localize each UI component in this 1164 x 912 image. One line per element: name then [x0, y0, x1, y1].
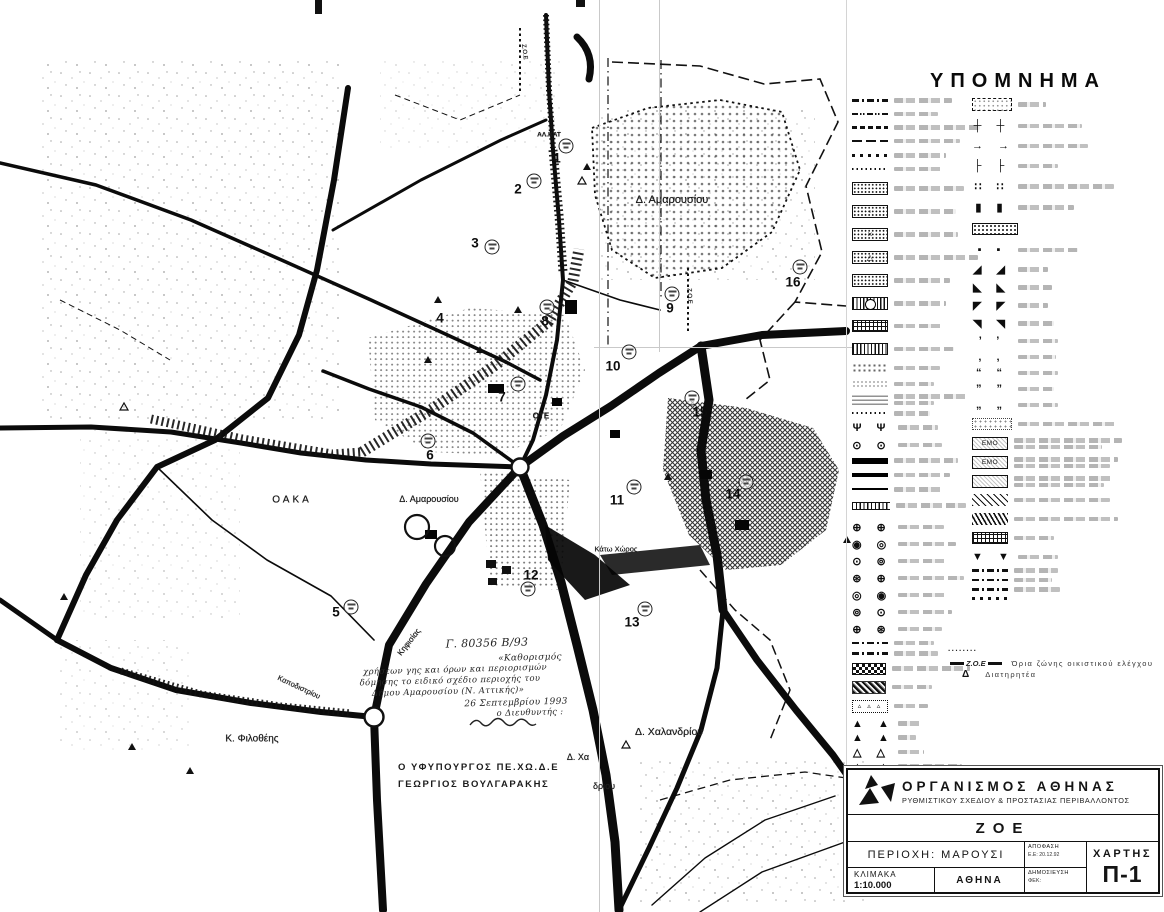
legend-row: ◉ ◎	[852, 538, 972, 551]
legend-row: ▲ ▲	[852, 718, 972, 730]
legend-row: ” ”	[972, 383, 1164, 395]
legend-row	[852, 473, 972, 478]
legend-symbol-dotbox-icon: ×	[852, 228, 888, 241]
legend-symbol-dotbox-icon: △	[852, 251, 888, 264]
legend-row	[852, 681, 972, 694]
legend-row: ▮ ▮	[972, 201, 1164, 214]
legend-row: ▵ ▵ ▵	[852, 700, 972, 713]
legend-label-illegible	[1014, 498, 1110, 503]
legend-symbol-pairglyph-icon: ◉ ◎	[852, 538, 892, 551]
legend-label-illegible	[894, 651, 938, 656]
legend-label-illegible	[894, 324, 944, 329]
legend-symbol-pairglyph-icon: △ △	[852, 746, 892, 759]
organization-logo	[856, 774, 896, 810]
legend-row: ◢ ◢	[972, 263, 1164, 276]
legend-symbol-dashbold-icon	[852, 126, 888, 130]
legend-label-illegible	[1014, 536, 1054, 541]
legend-row	[852, 153, 972, 158]
legend-label-illegible	[894, 112, 938, 117]
legend-row	[852, 139, 972, 144]
legend-label-illegible	[1014, 568, 1058, 573]
publication-value: ΦΕΚ:	[1028, 878, 1083, 884]
legend-symbol-tinytext-icon	[852, 395, 888, 405]
legend-label-illegible	[1018, 267, 1048, 272]
legend-label-illegible	[894, 153, 946, 158]
legend-symbol-pairglyph-icon: ⊛ ⊕	[852, 572, 892, 585]
legend-label-illegible	[894, 704, 928, 709]
legend-row: ⊕ ⊕	[852, 521, 972, 534]
legend-row: ◤ ◤	[972, 299, 1164, 312]
legend-row	[852, 98, 972, 103]
diatiritea-symbol: Δ	[962, 669, 969, 680]
legend-label-illegible	[898, 542, 956, 547]
legend-symbol-gridbox-icon	[972, 532, 1008, 544]
legend-row: ×	[852, 228, 972, 241]
legend-row: ▪ ▪	[972, 244, 1164, 256]
legend-symbol-pairglyph-icon: ◥ ◥	[972, 317, 1012, 330]
legend-symbol-dotbox-icon	[852, 182, 888, 195]
legend-row: ◦	[852, 205, 972, 218]
legend-row	[972, 494, 1164, 506]
legend-label-illegible	[894, 98, 952, 103]
legend-label-illegible	[898, 627, 942, 632]
chart-code: Π-1	[1102, 861, 1142, 888]
legend-symbol-dashdot-icon	[972, 588, 1008, 591]
legend-label-illegible	[894, 487, 944, 492]
organization-subtitle: ΡΥΘΜΙΣΤΙΚΟΥ ΣΧΕΔΙΟΥ & ΠΡΟΣΤΑΣΙΑΣ ΠΕΡΙΒΑΛ…	[902, 796, 1130, 805]
legend-row	[852, 182, 972, 195]
signature-squiggle	[468, 716, 538, 730]
legend-symbol-pairglyph-icon: ◤ ◤	[972, 299, 1012, 312]
legend-row	[852, 380, 972, 388]
organization-name: ΟΡΓΑΝΙΣΜΟΣ ΑΘΗΝΑΣ	[902, 779, 1130, 794]
legend-label-illegible	[894, 473, 950, 478]
legend-symbol-check-icon	[852, 663, 886, 675]
legend-label-illegible	[1018, 387, 1054, 392]
legend-row: ⊚ ⊙	[852, 606, 972, 619]
legend-label-illegible	[1018, 555, 1058, 560]
legend-row: ΕΜΟ	[972, 437, 1164, 450]
legend-column-right: ┼ ┼→ →├ ├∷ ∷▮ ▮▪ ▪◢ ◢◣ ◣◤ ◤◥ ◥’ ’‚ ‚“ “”…	[972, 98, 1164, 604]
legend-symbol-emo-icon: ΕΜΟ	[972, 456, 1008, 469]
legend-symbol-vhatch-icon	[852, 343, 888, 355]
legend-symbol-pairglyph-icon: ⊙ ⊚	[852, 555, 892, 568]
publication-label: ΔΗΜΟΣΙΕΥΣΗ	[1028, 870, 1083, 876]
legend-symbol-med-icon	[852, 473, 888, 477]
legend-label-illegible	[894, 394, 966, 405]
chart-label: ΧΑΡΤΗΣ	[1093, 848, 1152, 860]
legend-row: △ △	[852, 746, 972, 759]
legend-row: “ “	[972, 367, 1164, 379]
legend-label-illegible	[1018, 321, 1054, 326]
legend-symbol-dashdotdot-icon	[852, 113, 888, 116]
legend-label-illegible	[898, 610, 952, 615]
legend-row	[972, 418, 1164, 430]
legend-label-illegible	[1018, 248, 1078, 253]
legend-row	[852, 502, 972, 510]
legend-symbol-pairglyph-icon: ▲ ▲	[852, 718, 892, 730]
legend-symbol-dashdot-icon	[972, 579, 1008, 582]
legend-row: ⊙ ⊙	[852, 439, 972, 452]
title-block: ΟΡΓΑΝΙΣΜΟΣ ΑΘΗΝΑΣ ΡΥΘΜΙΣΤΙΚΟΥ ΣΧΕΔΙΟΥ & …	[846, 768, 1160, 894]
legend-row: „ „	[972, 399, 1164, 411]
legend-row	[852, 320, 972, 332]
region-cell: ΠΕΡΙΟΧΗ: ΜΑΡΟΥΣΙ	[848, 841, 1024, 867]
legend-symbol-noise-icon	[852, 681, 886, 694]
legend-label-illegible	[894, 411, 930, 416]
legend-row	[852, 411, 972, 416]
legend-symbol-pairglyph-icon: ◎ ◉	[852, 589, 892, 602]
legend-symbol-pairglyph-icon: ∷ ∷	[972, 180, 1012, 193]
legend-label-illegible	[1018, 184, 1114, 189]
legend-symbol-thin-icon	[852, 488, 888, 490]
legend-row	[972, 223, 1164, 235]
legend-label-illegible	[1018, 303, 1048, 308]
legend-zoe-entry: ········ Ζ.Ο.Ε Όρια ζώνης οικιστικού ελέ…	[948, 646, 1153, 668]
legend-label-illegible	[898, 559, 948, 564]
legend-row	[972, 98, 1164, 111]
legend-label-illegible	[894, 232, 958, 237]
legend-symbol-ties-icon	[852, 502, 890, 510]
legend-row	[852, 112, 972, 117]
legend-row	[972, 568, 1164, 573]
legend-label-illegible	[894, 125, 980, 130]
legend-symbol-pairglyph-icon: ├ ├	[972, 160, 1012, 172]
legend-symbol-emo-icon	[972, 475, 1008, 488]
legend-label-illegible	[1014, 587, 1060, 592]
legend-symbol-pairglyph-icon: ▼ ▼	[972, 551, 1012, 563]
legend-diatiritea-entry: Δ Διατηρητέα	[962, 669, 1036, 680]
legend-label-illegible	[894, 186, 964, 191]
legend-label-illegible	[898, 425, 938, 430]
legend-symbol-dotbox-icon	[852, 274, 888, 287]
legend-label-illegible	[1018, 144, 1088, 149]
legend-symbol-pairglyph-icon: ⊙ ⊙	[852, 439, 892, 452]
legend-row	[852, 394, 972, 405]
legend-symbol-sqdots-icon	[972, 597, 1008, 600]
legend-symbol-pairglyph-icon: ▮ ▮	[972, 201, 1012, 214]
scanned-planning-map-page: Δ. ΑμαρουσίουΔ. ΑμαρουσίουΟΑΚΑΟΤΕΚ. Φιλο…	[0, 0, 1164, 912]
legend-row: ∷ ∷	[972, 180, 1164, 193]
legend-row: ⊛ ⊕	[852, 572, 972, 585]
legend-row	[852, 297, 972, 310]
legend-row: △	[852, 251, 972, 264]
legend-symbol-pairglyph-icon: „ „	[972, 399, 1012, 411]
zoe-boundary-label: Όρια ζώνης οικιστικού ελέγχου	[1012, 659, 1154, 668]
legend-row	[852, 641, 972, 646]
legend-label-illegible	[898, 576, 964, 581]
legend-symbol-thick-icon	[852, 458, 888, 464]
publication-cell: ΔΗΜΟΣΙΕΥΣΗ ΦΕΚ:	[1024, 867, 1086, 892]
legend-dotted-row: ········	[948, 646, 1153, 655]
legend-label-illegible	[892, 685, 932, 690]
legend-row: ▼ ▼	[972, 551, 1164, 563]
legend-symbol-pairglyph-icon: ◣ ◣	[972, 281, 1012, 294]
legend-label-illegible	[898, 735, 916, 740]
scale-value: 1:10.000	[854, 880, 928, 891]
legend-symbol-pairglyph-icon: ” ”	[972, 383, 1012, 395]
legend-symbol-pairglyph-icon: → →	[972, 140, 1012, 152]
legend-row	[972, 578, 1164, 583]
diatiritea-label: Διατηρητέα	[985, 670, 1036, 679]
legend-label-illegible	[894, 278, 950, 283]
legend-symbol-pairglyph-icon: ▲ ▲	[852, 732, 892, 744]
legend-label-illegible	[1014, 517, 1118, 522]
decision-value: Ε.Ε: 20.12.92	[1028, 852, 1083, 858]
legend-label-illegible	[1018, 164, 1058, 169]
legend-row: ◥ ◥	[972, 317, 1164, 330]
legend-row: ▲ ▲	[852, 732, 972, 744]
legend-symbol-diag2-icon	[972, 513, 1008, 525]
legend-label-illegible	[1018, 355, 1056, 360]
legend-row	[972, 532, 1164, 544]
legend-row: ‚ ‚	[972, 351, 1164, 363]
legend-symbol-dashdot-icon	[852, 642, 888, 645]
legend-label-illegible	[894, 347, 954, 352]
legend-row: ’ ’	[972, 335, 1164, 347]
legend-label-illegible	[1018, 285, 1052, 290]
legend-row: ◎ ◉	[852, 589, 972, 602]
chart-cell: ΧΑΡΤΗΣ Π-1	[1086, 841, 1158, 892]
legend-symbol-faint-icon	[852, 380, 888, 388]
legend-label-illegible	[898, 525, 944, 530]
zoe-title: ΖΟΕ	[848, 814, 1158, 841]
zoe-boundary-symbol: Ζ.Ο.Ε	[948, 659, 1004, 668]
minister-name: ΓΕΩΡΓΙΟΣ ΒΟΥΛΓΑΡΑΚΗΣ	[398, 776, 559, 793]
legend-label-illegible	[1018, 339, 1058, 344]
legend-label-illegible	[1018, 102, 1046, 107]
legend-label-illegible	[1018, 205, 1074, 210]
legend-label-illegible	[898, 593, 946, 598]
handwritten-line: Γ. 80356 Β/93	[445, 635, 528, 650]
legend-title: ΥΠΟΜΝΗΜΑ	[930, 70, 1106, 93]
decision-label: ΑΠΟΦΑΣΗ	[1028, 844, 1083, 850]
legend-row	[852, 458, 972, 464]
legend-label-illegible	[894, 301, 946, 306]
scale-label: ΚΛΙΜΑΚΑ	[854, 870, 928, 879]
legend-label-illegible	[894, 167, 942, 172]
legend-label-illegible	[1014, 438, 1122, 449]
legend-symbol-pairglyph-icon: ◢ ◢	[972, 263, 1012, 276]
legend-symbol-dashdot-icon	[852, 652, 888, 655]
legend-row	[852, 274, 972, 287]
legend-row: → →	[972, 140, 1164, 152]
legend-label-illegible	[1014, 578, 1052, 583]
legend-symbol-pairglyph-icon: ┼ ┼	[972, 120, 1012, 132]
legend-symbol-circbox-icon	[852, 297, 888, 310]
legend-row	[972, 587, 1164, 592]
legend-label-illegible	[894, 209, 956, 214]
legend-row: ├ ├	[972, 160, 1164, 172]
legend-label-illegible	[1014, 476, 1114, 487]
legend-symbol-emo-icon: ΕΜΟ	[972, 437, 1008, 450]
legend-column-left: ◦×△Ψ Ψ⊙ ⊙⊕ ⊕◉ ◎⊙ ⊚⊛ ⊕◎ ◉⊚ ⊙⊕ ⊛▵ ▵ ▵▲ ▲▲ …	[852, 98, 972, 833]
legend-symbol-longdash-icon	[852, 140, 888, 143]
legend-symbol-pairglyph-icon: ⊚ ⊙	[852, 606, 892, 619]
legend-label-illegible	[894, 382, 934, 387]
legend-row	[972, 513, 1164, 525]
legend-label-illegible	[898, 750, 924, 755]
legend-symbol-gridbox-icon	[852, 320, 888, 332]
legend-symbol-pairglyph-icon: ‚ ‚	[972, 351, 1012, 363]
legend-label-illegible	[894, 458, 958, 463]
legend-symbol-sparse-icon	[852, 363, 888, 373]
legend-row	[852, 343, 972, 355]
legend-row: ◣ ◣	[972, 281, 1164, 294]
legend-label-illegible	[894, 139, 960, 144]
legend-row	[852, 125, 972, 130]
legend-row: Ψ Ψ	[852, 422, 972, 434]
legend-symbol-pairglyph-icon: “ “	[972, 367, 1012, 379]
legend-label-illegible	[1014, 457, 1118, 468]
legend-label-illegible	[1018, 403, 1058, 408]
minister-title: Ο ΥΦΥΠΟΥΡΓΟΣ ΠΕ.ΧΩ.Δ.Ε	[398, 759, 559, 776]
legend-row	[972, 597, 1164, 600]
decision-cell: ΑΠΟΦΑΣΗ Ε.Ε: 20.12.92	[1024, 841, 1086, 867]
scale-cell: ΚΛΙΜΑΚΑ 1:10.000	[848, 867, 934, 892]
city-cell: ΑΘΗΝΑ	[934, 867, 1024, 892]
legend-symbol-sqdots-icon	[852, 154, 888, 157]
legend-symbol-dashdot-icon	[852, 99, 888, 102]
legend-row	[972, 475, 1164, 488]
legend-label-illegible	[896, 503, 966, 508]
legend-label-illegible	[898, 721, 920, 726]
legend-row: ΕΜΟ	[972, 456, 1164, 469]
legend-symbol-pairglyph-icon: ⊕ ⊛	[852, 623, 892, 636]
minister-annotation: Ο ΥΦΥΠΟΥΡΓΟΣ ΠΕ.ΧΩ.Δ.Ε ΓΕΩΡΓΙΟΣ ΒΟΥΛΓΑΡΑ…	[398, 759, 559, 793]
legend-symbol-diag-icon	[972, 494, 1008, 506]
legend-label-illegible	[894, 255, 978, 260]
legend-label-illegible	[1018, 422, 1118, 427]
legend-row: ⊙ ⊚	[852, 555, 972, 568]
legend-label-illegible	[898, 443, 942, 448]
legend-symbol-sparse2-icon	[972, 418, 1012, 430]
legend-symbol-dashbox-icon	[972, 98, 1012, 111]
legend-label-illegible	[1018, 371, 1058, 376]
legend-symbol-pairglyph-icon: ’ ’	[972, 335, 1012, 347]
legend-label-illegible	[1018, 124, 1082, 129]
title-block-header: ΟΡΓΑΝΙΣΜΟΣ ΑΘΗΝΑΣ ΡΥΘΜΙΣΤΙΚΟΥ ΣΧΕΔΙΟΥ & …	[848, 770, 1158, 814]
legend-symbol-dotbox-icon: ◦	[852, 205, 888, 218]
legend-symbol-pairglyph-icon: ▪ ▪	[972, 244, 1012, 256]
legend-symbol-finedots-icon	[852, 412, 888, 414]
legend-row	[852, 487, 972, 492]
legend-row: ┼ ┼	[972, 120, 1164, 132]
legend-symbol-pairglyph-icon: Ψ Ψ	[852, 422, 892, 434]
legend-label-illegible	[894, 366, 940, 371]
legend-symbol-dashdot-icon	[972, 569, 1008, 572]
legend-row: ⊕ ⊛	[852, 623, 972, 636]
legend-symbol-finedots-icon	[852, 168, 888, 170]
legend-row	[852, 363, 972, 373]
legend-symbol-pairglyph-icon: ⊕ ⊕	[852, 521, 892, 534]
legend-symbol-tribox-icon: ▵ ▵ ▵	[852, 700, 888, 713]
legend-row	[852, 167, 972, 172]
legend-label-illegible	[894, 641, 934, 646]
legend-symbol-dotboxwide-icon	[972, 223, 1018, 235]
